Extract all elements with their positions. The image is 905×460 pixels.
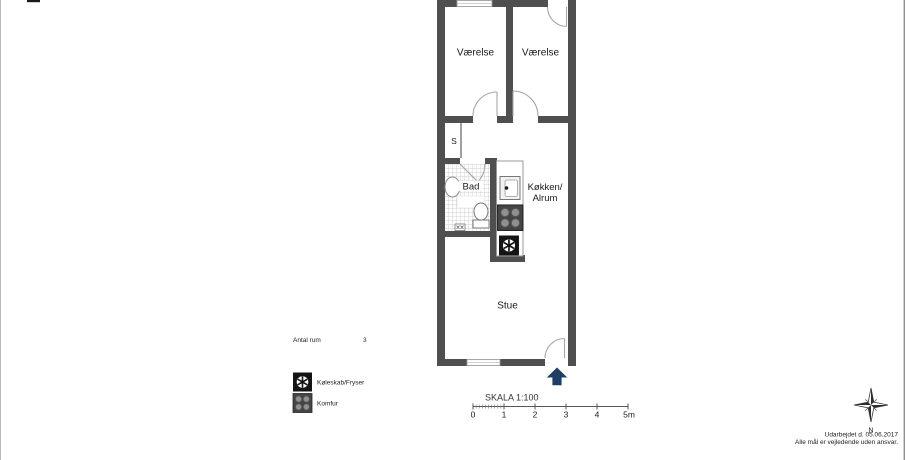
wall-middle-stub [497,116,513,123]
scale-bar: SKALA 1:100 0 1 2 3 4 5m [471,393,635,420]
top-edge-mark [27,0,40,2]
room-label-bedroom-left: Værelse [457,48,495,59]
footer-date: Udarbejdet d. 05.06.2017 [825,432,899,439]
legend-fridge-label: Køleskab/Fryser [317,380,365,387]
north-compass: N [854,388,888,435]
bath-sink [445,177,460,197]
entrance-arrow-icon [547,368,567,386]
room-label-bath: Bad [463,182,480,193]
room-label-kitchen-line1: Køkken/ [528,182,563,193]
wall-top-center [492,0,548,7]
door-arc-bedroom-right [513,91,538,116]
wall-middle-left [445,116,473,123]
door-arc-bedroom-left [473,92,497,116]
legend-rooms-count-value: 3 [363,337,367,344]
wall-bath-bottom [445,231,497,237]
fridge-icon [499,236,519,256]
legend-rooms-count-label: Antal rum [293,337,321,344]
scale-tick-2: 2 [533,410,538,420]
legend: Antal rum 3 Køleskab/Fryser Komfur [293,337,367,413]
wall-bottom-center [500,359,545,366]
footer-disclaimer: Alle mål er vejledende uden ansvar. [795,438,898,446]
legend-fridge-icon [293,373,312,392]
room-label-kitchen-line2: Alrum [533,193,558,204]
room-label-bedroom-right: Værelse [522,48,560,59]
scale-tick-0: 0 [471,410,476,420]
room-label-closet: S [451,136,457,146]
stove-icon [498,205,523,230]
legend-stove-icon [293,394,312,413]
floor-drain [455,224,465,231]
footer-notes: Udarbejdet d. 05.06.2017 Alle mål er vej… [795,432,898,447]
wall-bottom-left [437,359,467,366]
scale-title: SKALA 1:100 [485,393,539,403]
wall-right [568,0,576,366]
toilet-bowl [474,203,488,220]
wall-middle-right [538,116,568,123]
wall-bedroom-divider [506,0,513,116]
floor-plan-page: Værelse Værelse S Bad Køkken/ Alrum Stue… [0,0,905,460]
wall-bath-right [490,158,497,262]
scale-tick-1: 1 [502,410,507,420]
door-arc-entrance [545,339,565,359]
wall-left [437,0,445,366]
room-label-living: Stue [497,301,518,312]
toilet-tank [473,220,489,228]
scale-tick-3: 3 [564,410,569,420]
floor-plan-svg: Værelse Værelse S Bad Køkken/ Alrum Stue… [0,0,905,460]
scale-tick-5: 5m [623,410,635,420]
left-edge-line [0,0,1,460]
legend-stove-label: Komfur [317,401,339,408]
kitchen-faucet [505,186,509,190]
scale-tick-labels: 0 1 2 3 4 5m [471,410,635,420]
wall-bath-top-left [445,158,460,164]
kitchen-fixtures [497,161,524,256]
door-arc-bedroom-right-top [547,7,566,27]
scale-tick-4: 4 [595,410,600,420]
